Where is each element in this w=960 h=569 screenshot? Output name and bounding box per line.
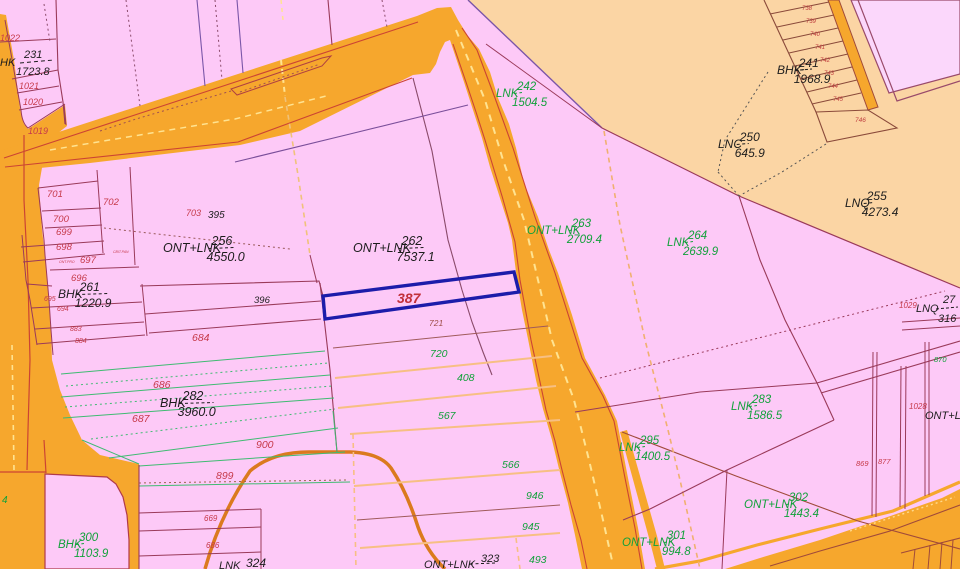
svg-text:493: 493 (529, 554, 547, 566)
svg-text:1586.5: 1586.5 (747, 410, 783, 422)
svg-text:1400.5: 1400.5 (635, 451, 671, 463)
svg-text:699: 699 (56, 227, 73, 238)
svg-text:396: 396 (254, 295, 271, 306)
svg-text:1022: 1022 (0, 33, 20, 43)
svg-text:745: 745 (833, 97, 844, 103)
svg-text:395: 395 (208, 210, 225, 221)
svg-text:1443.4: 1443.4 (784, 508, 819, 520)
svg-text:1021: 1021 (19, 81, 39, 91)
svg-text:LNQ: LNQ (916, 303, 939, 315)
svg-text:4273.4: 4273.4 (862, 205, 899, 219)
svg-text:2639.9: 2639.9 (682, 246, 719, 258)
svg-text:263: 263 (571, 218, 592, 230)
svg-text:700: 700 (53, 214, 70, 225)
svg-text:746: 746 (855, 117, 866, 124)
svg-text:LNK: LNK (219, 560, 241, 569)
svg-text:694: 694 (57, 306, 69, 313)
svg-text:994.8: 994.8 (662, 546, 691, 558)
svg-text:300: 300 (79, 532, 99, 544)
svg-text:27: 27 (942, 294, 956, 306)
svg-text:1019: 1019 (28, 126, 48, 136)
svg-text:877: 877 (878, 457, 891, 466)
svg-text:4: 4 (2, 495, 8, 506)
svg-text:7537.1: 7537.1 (397, 250, 435, 264)
svg-text:1103.9: 1103.9 (74, 548, 109, 560)
svg-text:316: 316 (938, 313, 957, 325)
svg-text:567: 567 (438, 410, 457, 422)
svg-text:1723.8: 1723.8 (16, 66, 51, 78)
svg-text:283: 283 (751, 394, 772, 406)
svg-text:669: 669 (204, 514, 218, 523)
svg-text:721: 721 (429, 318, 443, 328)
svg-text:686: 686 (206, 541, 220, 550)
svg-text:701: 701 (47, 189, 63, 200)
svg-text:687: 687 (132, 413, 151, 425)
svg-text:884: 884 (75, 338, 87, 345)
svg-text:1020: 1020 (23, 97, 43, 107)
svg-text:900: 900 (256, 439, 274, 451)
svg-text:387: 387 (397, 290, 422, 306)
svg-text:ONT.PRO: ONT.PRO (59, 260, 75, 264)
svg-text:256: 256 (211, 234, 233, 248)
svg-text:241: 241 (798, 56, 819, 70)
svg-text:255: 255 (866, 189, 887, 203)
svg-text:231: 231 (23, 49, 42, 61)
svg-text:696: 696 (71, 273, 88, 284)
svg-text:282: 282 (182, 389, 204, 403)
svg-text:566: 566 (502, 459, 520, 471)
svg-text:869: 869 (856, 459, 869, 468)
svg-text:686: 686 (153, 379, 171, 391)
svg-text:ONT+L: ONT+L (925, 410, 960, 422)
svg-text:1028: 1028 (909, 402, 927, 411)
svg-text:324: 324 (246, 556, 266, 569)
svg-text:741: 741 (815, 45, 825, 51)
svg-text:743: 743 (824, 71, 835, 77)
svg-text:870: 870 (934, 355, 947, 364)
svg-text:697: 697 (80, 255, 97, 266)
svg-text:740: 740 (810, 32, 821, 38)
svg-text:899: 899 (216, 470, 234, 482)
svg-text:645.9: 645.9 (735, 146, 765, 160)
svg-text:242: 242 (516, 81, 537, 93)
svg-text:703: 703 (186, 208, 201, 218)
svg-text:720: 720 (430, 348, 448, 360)
svg-text:684: 684 (192, 332, 210, 344)
svg-text:250: 250 (739, 130, 760, 144)
svg-text:1029: 1029 (899, 301, 917, 310)
svg-text:1220.9: 1220.9 (75, 296, 112, 310)
svg-text:301: 301 (667, 530, 686, 542)
svg-text:264: 264 (687, 230, 707, 242)
svg-text:698: 698 (56, 242, 73, 253)
svg-text:408: 408 (457, 372, 475, 384)
svg-text:739: 739 (806, 19, 817, 25)
svg-text:738: 738 (802, 6, 813, 12)
svg-text:ONT+LNK: ONT+LNK (424, 559, 476, 569)
svg-text:295: 295 (639, 435, 660, 447)
svg-text:3960.0: 3960.0 (178, 405, 216, 419)
svg-text:946: 946 (526, 490, 544, 502)
svg-text:695: 695 (44, 296, 56, 303)
svg-text:744: 744 (828, 84, 839, 90)
svg-text:CBIT.PAN: CBIT.PAN (113, 250, 129, 254)
svg-text:2709.4: 2709.4 (566, 234, 602, 246)
svg-text:1504.5: 1504.5 (512, 97, 548, 109)
svg-text:HK: HK (0, 57, 16, 69)
svg-text:702: 702 (103, 197, 120, 208)
svg-text:302: 302 (789, 492, 809, 504)
svg-text:262: 262 (401, 234, 423, 248)
svg-text:4550.0: 4550.0 (207, 250, 245, 264)
svg-text:945: 945 (522, 521, 540, 533)
svg-text:742: 742 (820, 58, 831, 64)
svg-text:883: 883 (70, 326, 82, 333)
